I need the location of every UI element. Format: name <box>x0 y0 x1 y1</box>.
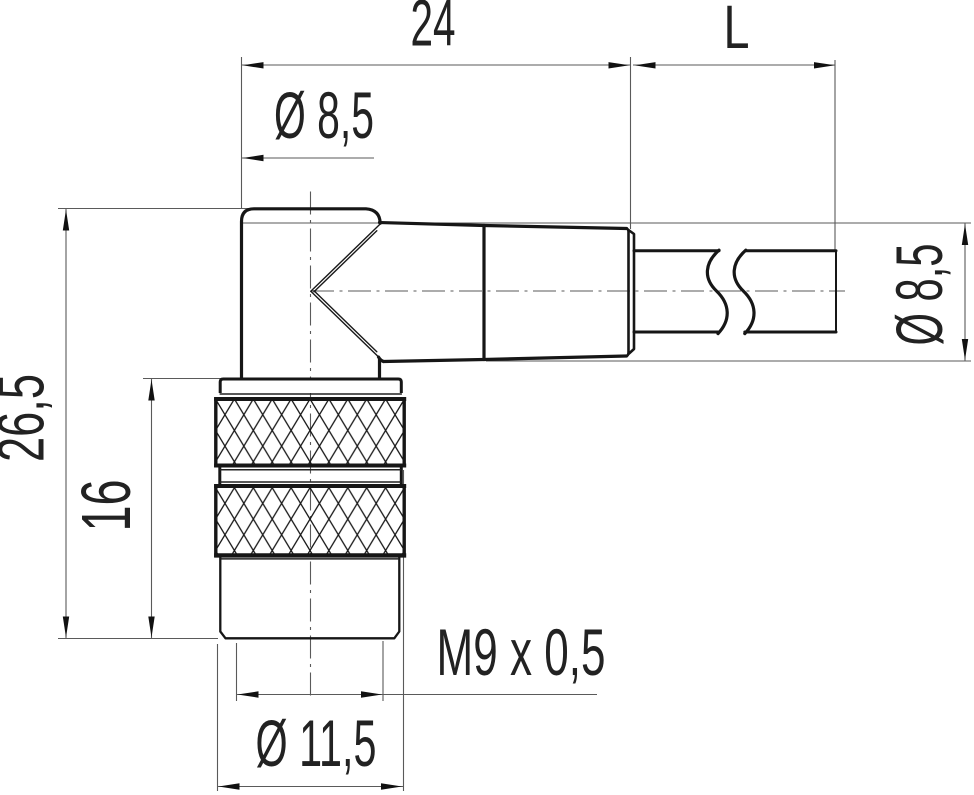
svg-text:Ø 11,5: Ø 11,5 <box>256 706 377 780</box>
svg-text:Ø 8,5: Ø 8,5 <box>882 244 956 346</box>
svg-text:M9 x 0,5: M9 x 0,5 <box>437 615 606 689</box>
svg-text:26,5: 26,5 <box>0 374 58 462</box>
svg-text:24: 24 <box>411 0 456 59</box>
svg-text:L: L <box>724 0 750 61</box>
svg-text:Ø 8,5: Ø 8,5 <box>274 78 374 152</box>
svg-text:16: 16 <box>67 480 145 532</box>
